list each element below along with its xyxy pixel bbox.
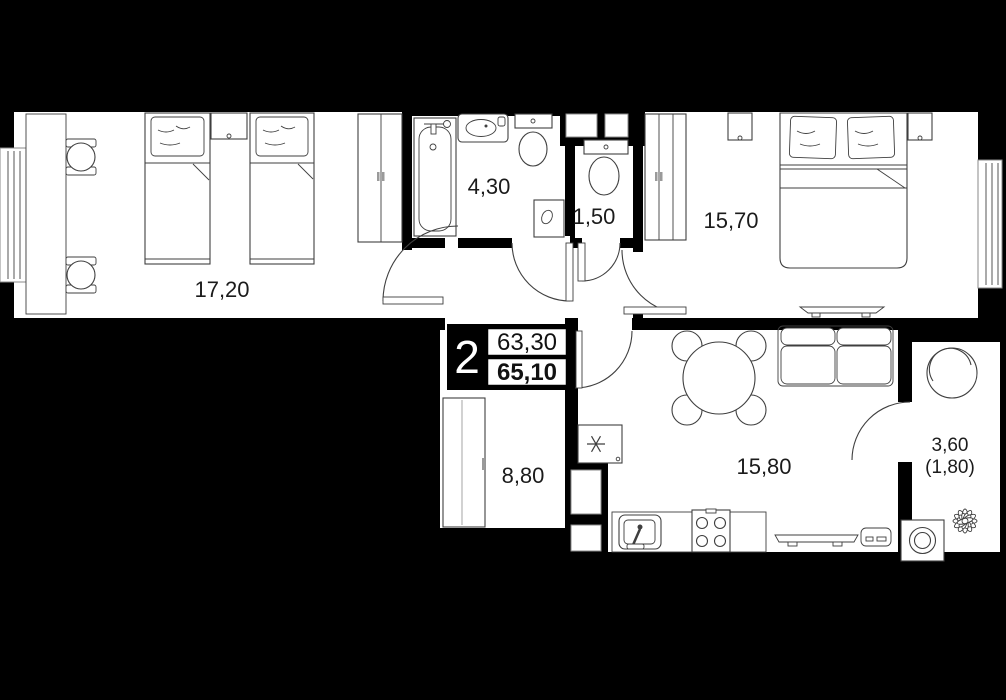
door-gap-wc: [582, 236, 620, 250]
room-area-label: 17,20: [194, 277, 249, 302]
tv-screen: [800, 307, 884, 313]
table-top: [683, 342, 755, 414]
door-leaf: [566, 243, 573, 301]
apartment-type-badge: 2 63,30 65,10: [447, 324, 571, 390]
seat: [67, 143, 95, 171]
seat-cushion: [837, 346, 891, 384]
nightstand-icon: [908, 113, 932, 140]
corridor-floor: [412, 248, 633, 318]
twin-bedroom-door-opening: [402, 250, 412, 318]
tv-foot: [862, 313, 870, 317]
door-leaf: [576, 331, 582, 388]
door-leaf: [578, 243, 585, 281]
wardrobe-body: [645, 114, 686, 240]
vent-shaft-icon: [605, 114, 628, 137]
washing-machine-icon: [901, 520, 944, 561]
window-left-icon: [0, 148, 26, 282]
floor-plan-page: 17,20 4,30: [0, 0, 1006, 700]
vent-shaft-icon: [571, 470, 601, 514]
single-bed-icon: [145, 113, 210, 264]
tv-foot: [833, 542, 842, 546]
room-area-label: 1,50: [573, 204, 616, 229]
stove-body: [692, 510, 730, 552]
round-chair-icon: [927, 348, 977, 398]
door-gap-master: [633, 252, 643, 312]
vent-shaft-icon: [571, 525, 601, 551]
wardrobe-icon: [443, 398, 485, 527]
cabinet-icon: [534, 200, 564, 237]
dining-table-icon: [672, 331, 766, 425]
cistern: [515, 114, 552, 128]
seat: [67, 261, 95, 289]
door-gap-kitchen: [578, 318, 632, 330]
room-area-label: 8,80: [502, 463, 545, 488]
drain: [485, 125, 488, 128]
door-leaf: [624, 307, 686, 314]
door-gap-twin: [445, 236, 458, 250]
pillow: [151, 117, 204, 156]
nightstand-icon: [728, 113, 752, 140]
faucet-base: [638, 525, 643, 530]
cistern: [584, 140, 628, 154]
handle: [377, 172, 380, 181]
pillow: [847, 116, 894, 159]
handle: [655, 172, 658, 181]
room-area-label: 4,30: [468, 174, 511, 199]
door-leaf: [383, 297, 443, 304]
fridge-icon: [578, 425, 622, 463]
machine-body: [901, 520, 944, 561]
tv-foot: [812, 313, 820, 317]
double-bed-icon: [780, 113, 907, 268]
wardrobe-body: [443, 398, 485, 527]
total-area-label: 65,10: [497, 359, 557, 386]
pillow: [256, 117, 308, 156]
cabinet-body: [534, 200, 564, 237]
room-area-label: 15,80: [736, 454, 791, 479]
window-frame: [0, 148, 26, 282]
armchair-icon: [66, 139, 96, 175]
back-cushion: [781, 328, 835, 345]
wardrobe-body: [358, 114, 402, 242]
room-area-label: 15,70: [703, 208, 758, 233]
room-area-label: 3,60: [932, 435, 969, 456]
nightstand-icon: [211, 113, 247, 139]
desk-icon: [26, 114, 66, 314]
rooms-count-label: 2: [454, 331, 480, 383]
wardrobe-icon: [645, 114, 686, 240]
faucet-stem: [431, 124, 436, 134]
stove-handle: [706, 509, 716, 513]
door-gap-balcony: [898, 402, 912, 462]
back-cushion: [837, 328, 891, 345]
window-right-icon: [978, 160, 1002, 288]
wardrobe-icon: [358, 114, 402, 242]
bowl: [519, 132, 547, 166]
handle: [382, 172, 385, 181]
door-gap-bath: [512, 236, 570, 250]
armchair-icon: [66, 257, 96, 293]
living-area-label: 63,30: [497, 329, 557, 356]
tub-outer: [414, 118, 456, 236]
bathtub-icon: [414, 118, 456, 236]
single-bed-icon: [250, 113, 314, 264]
bowl: [589, 157, 619, 195]
tv-screen: [775, 535, 858, 542]
seat-cushion: [781, 346, 835, 384]
tv-foot: [788, 542, 797, 546]
vent-shaft-icon: [566, 114, 597, 137]
pillow: [789, 116, 836, 159]
floor-plan: 17,20 4,30: [0, 0, 1006, 700]
vanity: [458, 114, 508, 142]
room-area-label-secondary: (1,80): [925, 457, 975, 478]
handle: [482, 458, 485, 470]
sink-icon: [458, 114, 508, 142]
handle: [660, 172, 663, 181]
faucet-plate: [627, 544, 644, 549]
media-console: [861, 528, 891, 546]
stove-icon: [692, 509, 730, 552]
nightstand-top: [211, 113, 247, 139]
kitchen-shafts: [565, 462, 608, 558]
faucet-knob: [444, 121, 451, 128]
